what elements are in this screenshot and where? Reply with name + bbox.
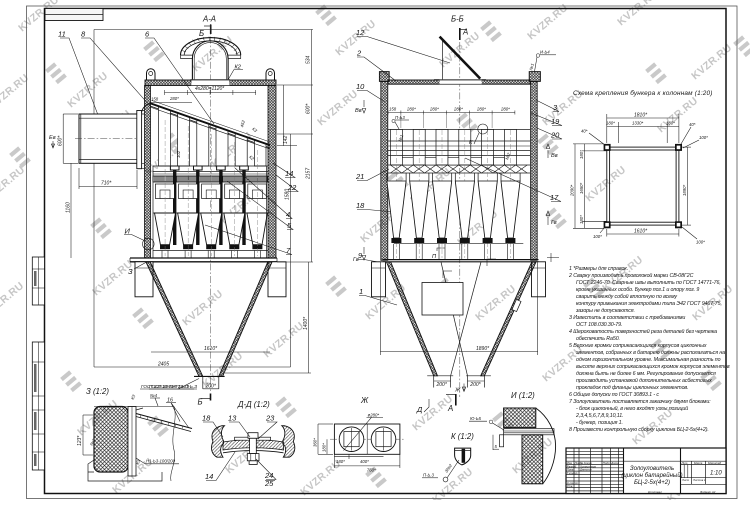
svg-text:100*: 100* [593, 234, 602, 239]
svg-text:40*: 40* [581, 129, 588, 134]
svg-text:2405: 2405 [157, 361, 169, 367]
svg-text:Д-Д (1:2): Д-Д (1:2) [237, 400, 270, 409]
svg-text:БЦ-2-5х(4+2): БЦ-2-5х(4+2) [634, 480, 670, 486]
svg-text:Гв: Гв [551, 220, 557, 226]
svg-text:прокладок под фланцы циклонных: прокладок под фланцы циклонных элементов… [576, 385, 688, 391]
svg-text:Дерюгин: Дерюгин [579, 468, 592, 472]
svg-text:200*: 200* [205, 383, 217, 389]
svg-text:600*: 600* [306, 103, 312, 114]
svg-text:контуру примыкания электродами: контуру примыкания электродами типа Э42 … [576, 301, 722, 307]
svg-text:18: 18 [202, 414, 211, 423]
svg-text:4: 4 [286, 210, 290, 219]
svg-text:11: 11 [58, 30, 66, 39]
svg-text:Д: Д [416, 405, 423, 414]
svg-text:ø280*: ø280* [368, 412, 380, 417]
svg-text:Масса: Масса [694, 461, 703, 465]
svg-text:1610*: 1610* [204, 346, 218, 352]
svg-text:2157: 2157 [306, 168, 312, 180]
svg-text:102: 102 [176, 150, 181, 158]
svg-text:14: 14 [205, 472, 213, 481]
svg-text:Ж: Ж [360, 396, 369, 405]
svg-text:Вв: Вв [355, 108, 362, 114]
svg-text:280*: 280* [429, 107, 439, 112]
svg-text:40*: 40* [689, 122, 696, 127]
svg-text:одном горизонтальном уровне. М: одном горизонтальном уровне. Максимальна… [576, 357, 721, 363]
svg-text:ОСТ 108.030.30-79.: ОСТ 108.030.30-79. [576, 322, 622, 328]
svg-text:1: 1 [359, 287, 363, 296]
svg-text:21: 21 [355, 172, 364, 181]
svg-text:158: 158 [389, 107, 397, 112]
svg-text:ГОСТ 2246-70. Сварные швы выпо: ГОСТ 2246-70. Сварные швы выполнить по Г… [576, 280, 721, 286]
svg-text:Схема крепления бункера к коло: Схема крепления бункера к колоннам (1:20… [573, 89, 713, 97]
svg-text:Формат А2: Формат А2 [700, 490, 716, 494]
svg-text:обеспечить Ra50.: обеспечить Ra50. [576, 336, 620, 342]
svg-text:200*: 200* [436, 382, 448, 388]
svg-text:1610*: 1610* [634, 229, 648, 235]
svg-text:180*: 180* [336, 459, 345, 464]
svg-text:142: 142 [283, 135, 289, 144]
svg-text:И-Ь4: И-Ь4 [540, 50, 550, 55]
svg-text:2090*: 2090* [570, 184, 575, 197]
svg-text:534: 534 [306, 55, 312, 64]
svg-text:600*: 600* [58, 135, 64, 146]
svg-text:3 Известить в соответствии с: 3 Известить в соответствии с требованиям… [569, 315, 685, 321]
svg-text:П-Ь.3: П-Ь.3 [423, 473, 435, 478]
svg-text:- блок циклонный, в него входя: - блок циклонный, в него входят узлы поз… [576, 405, 688, 412]
svg-text:Листов 1: Листов 1 [692, 478, 706, 482]
svg-text:Подп.: Подп. [603, 461, 611, 465]
svg-text:1160: 1160 [66, 202, 72, 213]
svg-text:180*: 180* [666, 121, 675, 126]
svg-text:2: 2 [356, 49, 362, 58]
svg-text:И: И [125, 227, 131, 236]
svg-text:производить установкой дополни: производить установкой дополнительных ас… [576, 377, 712, 384]
svg-text:З: З [128, 267, 133, 276]
svg-text:180*: 180* [606, 121, 615, 126]
svg-text:18: 18 [356, 201, 365, 210]
svg-text:Масштаб: Масштаб [708, 461, 721, 465]
svg-text:180*: 180* [579, 150, 584, 159]
svg-text:2 Сварку производить проволок: 2 Сварку производить проволокой марки СВ… [568, 272, 694, 279]
svg-text:Вв: Вв [551, 153, 558, 159]
svg-text:высоте верхних соприкасающихся: высоте верхних соприкасающихся кромок ко… [576, 364, 730, 370]
svg-text:кроме указанных особо. Бункер: кроме указанных особо. Бункер поз.1 и оп… [576, 287, 699, 293]
svg-text:З (1:2): З (1:2) [86, 387, 109, 396]
svg-text:Н1-Ь3-100/200: Н1-Ь3-100/200 [146, 459, 176, 464]
svg-text:1810*: 1810* [634, 113, 648, 119]
svg-text:Б-Б: Б-Б [451, 15, 464, 24]
svg-text:1330*: 1330* [632, 121, 644, 126]
svg-text:1650*: 1650* [579, 182, 584, 194]
svg-text:100*: 100* [699, 135, 708, 140]
svg-text:710*: 710* [101, 181, 112, 187]
svg-text:сварить между собой вплотную п: сварить между собой вплотную по всему [576, 293, 677, 300]
svg-text:360*: 360* [312, 438, 317, 447]
svg-text:К (1:2): К (1:2) [451, 432, 474, 441]
svg-text:должна быть не более 6 мм. Рег: должна быть не более 6 мм. Регулирование… [576, 371, 716, 377]
svg-text:100*: 100* [696, 240, 705, 245]
svg-text:280*: 280* [406, 107, 416, 112]
svg-text:13: 13 [228, 414, 237, 423]
svg-text:400*: 400* [360, 459, 369, 464]
svg-text:1400*: 1400* [303, 316, 309, 330]
svg-text:6 Общие допуски по ГОСТ 30893: 6 Общие допуски по ГОСТ 30893.1 - с [569, 392, 659, 398]
svg-text:7 Золоуловитель поставляется: 7 Золоуловитель поставляется заказчику д… [569, 399, 711, 405]
svg-text:Лит.: Лит. [681, 461, 689, 465]
svg-text:1890*: 1890* [682, 184, 687, 196]
svg-text:4 Шероховатость поверхностей: 4 Шероховатость поверхностей реза детале… [569, 328, 717, 335]
svg-text:760*: 760* [367, 468, 376, 473]
svg-text:И (1:2): И (1:2) [511, 391, 535, 400]
svg-text:280*: 280* [500, 107, 510, 112]
svg-text:12: 12 [356, 28, 365, 37]
svg-text:П-Ь3: П-Ь3 [395, 115, 405, 120]
svg-text:8 Произвести контрольную сбор: 8 Произвести контрольную сборку циклона … [569, 427, 709, 433]
svg-text:2,3,4,5,6,7,8,9,10,11.: 2,3,4,5,6,7,8,9,10,11. [575, 413, 623, 419]
svg-text:- бункер, позиция 1.: - бункер, позиция 1. [576, 420, 623, 426]
svg-text:Б: Б [199, 29, 204, 38]
svg-text:А-А: А-А [202, 15, 216, 24]
svg-text:280*: 280* [476, 107, 486, 112]
svg-text:280*: 280* [169, 96, 179, 101]
svg-text:1 *Размеры для справок.: 1 *Размеры для справок. [569, 266, 628, 272]
svg-text:Золоуловитель: Золоуловитель [630, 466, 674, 472]
svg-text:Т.контр.: Т.контр. [567, 471, 579, 475]
svg-text:280*: 280* [453, 107, 463, 112]
svg-text:1890*: 1890* [476, 346, 490, 352]
svg-text:А: А [462, 28, 468, 37]
svg-text:А: А [447, 404, 453, 413]
svg-text:Гв: Гв [353, 257, 359, 263]
svg-text:23: 23 [265, 414, 275, 423]
svg-text:180*: 180* [321, 443, 326, 452]
svg-text:123*: 123* [77, 435, 83, 446]
svg-text:Утв.: Утв. [567, 484, 574, 488]
svg-text:20: 20 [550, 131, 560, 140]
svg-text:ГОСТ 23518-79-Т1-Ь.З: ГОСТ 23518-79-Т1-Ь.З [141, 384, 189, 389]
svg-text:5 Верхние кромки соприкасающи: 5 Верхние кромки соприкасающихся корпусо… [569, 343, 707, 349]
svg-text:1:10: 1:10 [710, 471, 722, 477]
svg-text:(циклон батарейный): (циклон батарейный) [621, 472, 682, 479]
svg-text:Ю-Ь5: Ю-Ь5 [470, 416, 482, 421]
svg-text:№4: №4 [150, 393, 158, 398]
svg-text:10: 10 [356, 82, 365, 91]
svg-text:зазоры не допускаются.: зазоры не допускаются. [575, 308, 635, 314]
svg-text:Ев: Ев [49, 135, 56, 141]
svg-text:Ж: Ж [454, 388, 461, 394]
svg-text:Копировал: Копировал [648, 490, 662, 494]
svg-text:180*: 180* [579, 215, 584, 224]
svg-text:Дата: Дата [610, 461, 619, 465]
svg-text:элементов, собранных в батарею: элементов, собранных в батарею должны ра… [576, 350, 725, 356]
svg-text:200*: 200* [469, 382, 481, 388]
svg-text:17: 17 [550, 193, 559, 202]
